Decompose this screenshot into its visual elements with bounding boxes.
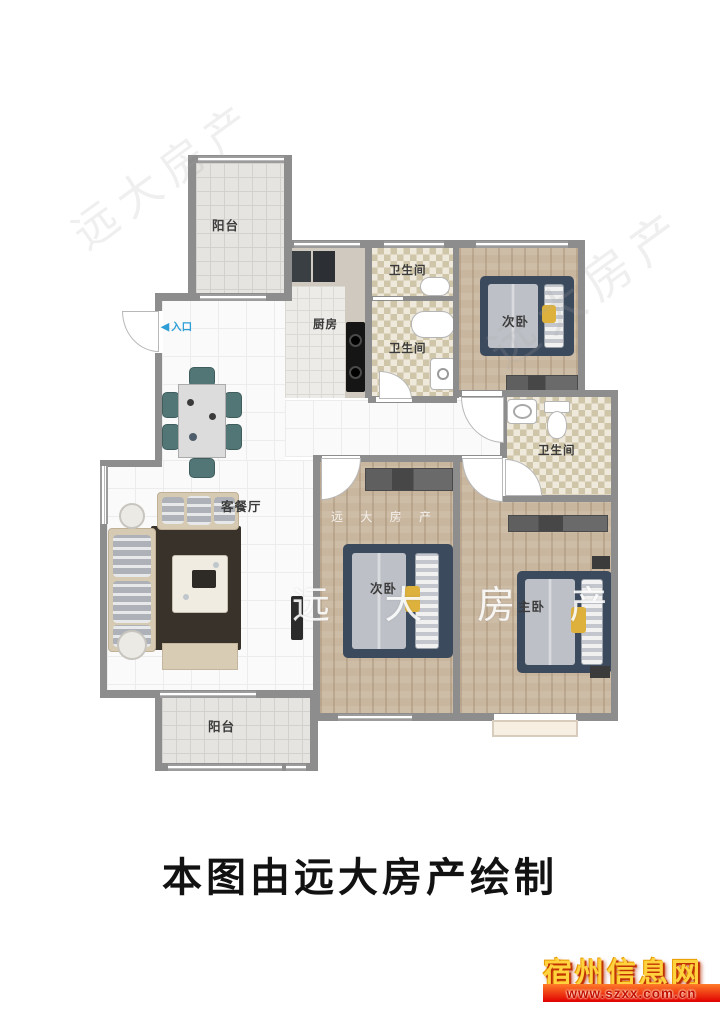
side-stool [117,630,147,660]
caption-text: 本图由远大房产绘制 [0,845,720,903]
room-label-kitchen: 厨房 [313,316,338,332]
plate-icon [209,413,216,420]
bathtub-icon [411,311,455,338]
wall [365,245,372,398]
room-label-bath-top: 卫生间 [389,262,427,278]
room-label-balcony-top: 阳台 [212,215,239,234]
balcony-door [160,691,256,698]
burner-icon [349,366,362,379]
wall [310,690,318,771]
nightstand [592,556,610,569]
wall [155,690,162,771]
window [476,241,568,248]
small-watermark: 远 大 房 产 [331,508,438,525]
window [286,764,306,771]
dining-chair [224,424,242,450]
plate-icon [187,399,194,406]
bay-window [492,720,578,737]
balcony-door [200,294,266,301]
wall [500,390,618,397]
wardrobe-master [508,515,608,532]
window [168,764,282,771]
large-watermark: 远 大 房 产 [292,574,630,629]
burner-icon [349,334,362,347]
wardrobe-bedroom-mid [365,468,453,491]
nightstand [590,666,610,678]
room-label-bath-right: 卫生间 [538,442,576,458]
kitchen-appliance-icon [313,251,335,282]
site-url-banner: www.szxx.com.cn [543,984,720,1002]
cup-icon [183,594,189,600]
dining-chair [189,458,215,478]
entry-arrow-icon: ◀ [161,321,169,333]
window [294,241,360,248]
floorplan-image: 远大房产 远大房产 远 大 房 产 远 大 房 产 阳台 厨房 卫生间 卫生间 … [0,0,720,1018]
wall [284,155,292,301]
wall [100,460,162,467]
door-gap [373,297,403,300]
dining-chair [224,392,242,418]
basin-bowl-icon [513,404,532,419]
tv-bench [162,643,238,670]
entry-door-arc [122,311,159,352]
door-gap [462,391,502,396]
tray-icon [192,570,216,588]
site-url-text: www.szxx.com.cn [566,986,696,1001]
washer-drum-icon [437,368,449,380]
wall [611,390,618,500]
room-label-bedroom-mid: 次卧 [370,578,397,597]
cooktop-icon [346,322,365,392]
plate-icon [189,433,197,441]
toilet-bowl-icon [547,411,567,439]
toilet-icon [420,277,450,296]
floor-kitchen [285,286,345,398]
fridge-icon [289,251,311,282]
room-label-master: 主卧 [518,596,545,615]
wall [453,245,459,398]
floor-balcony-top [196,163,284,294]
coffee-table [172,555,228,613]
room-label-living: 客餐厅 [221,496,262,515]
room-label-bedroom-top: 次卧 [502,311,529,330]
wall [503,495,618,502]
floor-balcony-bottom [162,697,310,764]
entry-label: 入口 [171,319,192,334]
window [384,241,444,248]
window [338,714,412,721]
side-stool [119,503,145,529]
room-label-bath-mid: 卫生间 [389,340,427,356]
window [100,466,108,524]
dining-table [178,384,226,458]
washbasin-icon [507,399,537,424]
entry-marker: ◀ 入口 [161,319,192,334]
room-label-balcony-bottom: 阳台 [208,716,235,735]
cup-icon [213,562,219,568]
